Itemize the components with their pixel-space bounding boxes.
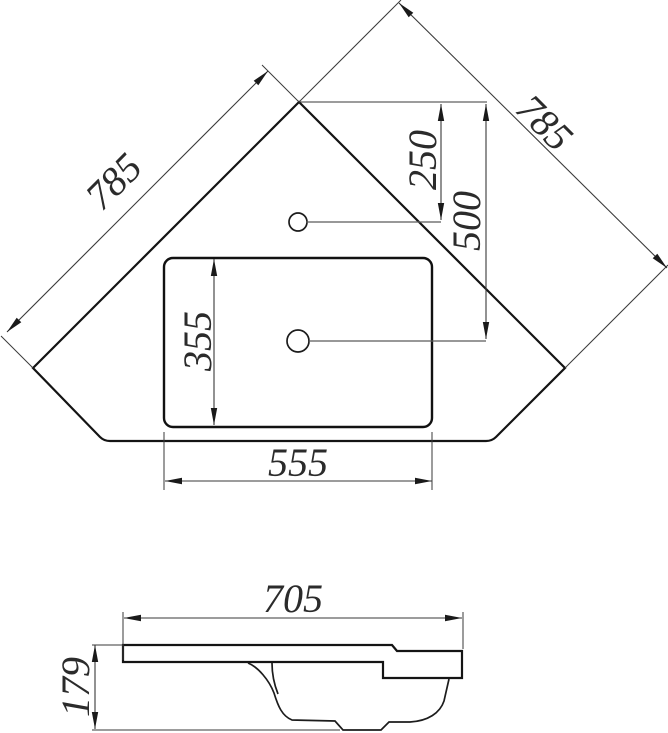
dim-179: 179 xyxy=(53,645,340,730)
drawing-canvas: 250 500 355 555 xyxy=(0,0,668,733)
dim-label-705: 705 xyxy=(263,576,323,621)
arrowhead-up xyxy=(211,259,217,276)
dim-785-left: 785 xyxy=(1,65,299,368)
dim-label-500: 500 xyxy=(444,191,489,251)
dim-label-355: 355 xyxy=(175,311,220,372)
side-profile-bowl xyxy=(248,663,449,730)
faucet-hole xyxy=(289,213,307,231)
dim-355: 355 xyxy=(175,259,220,425)
technical-drawing-svg: 250 500 355 555 xyxy=(0,0,668,733)
arrowhead-right xyxy=(415,478,432,484)
dim-785-right: 785 xyxy=(299,0,668,368)
drain-hole xyxy=(287,330,309,352)
dim-label-785-right: 785 xyxy=(507,85,581,159)
dim-705: 705 xyxy=(123,576,463,660)
top-view: 250 500 355 555 xyxy=(1,0,668,490)
dim-label-250: 250 xyxy=(400,130,445,190)
dim-label-179: 179 xyxy=(53,657,98,717)
arrowhead-right xyxy=(445,615,462,621)
dim-label-785-left: 785 xyxy=(76,144,150,218)
dim-label-555: 555 xyxy=(268,440,328,485)
dim-500: 500 xyxy=(444,104,489,339)
side-profile-rim xyxy=(123,645,462,678)
dim-250: 250 xyxy=(400,104,445,220)
arrowhead-down xyxy=(211,408,217,425)
side-view: 705 179 xyxy=(53,576,463,730)
arrowhead-left xyxy=(165,478,182,484)
arrowhead-up xyxy=(438,104,444,121)
arrowhead-up xyxy=(483,104,489,121)
arrowhead-down xyxy=(483,322,489,339)
arrowhead-left xyxy=(124,615,141,621)
